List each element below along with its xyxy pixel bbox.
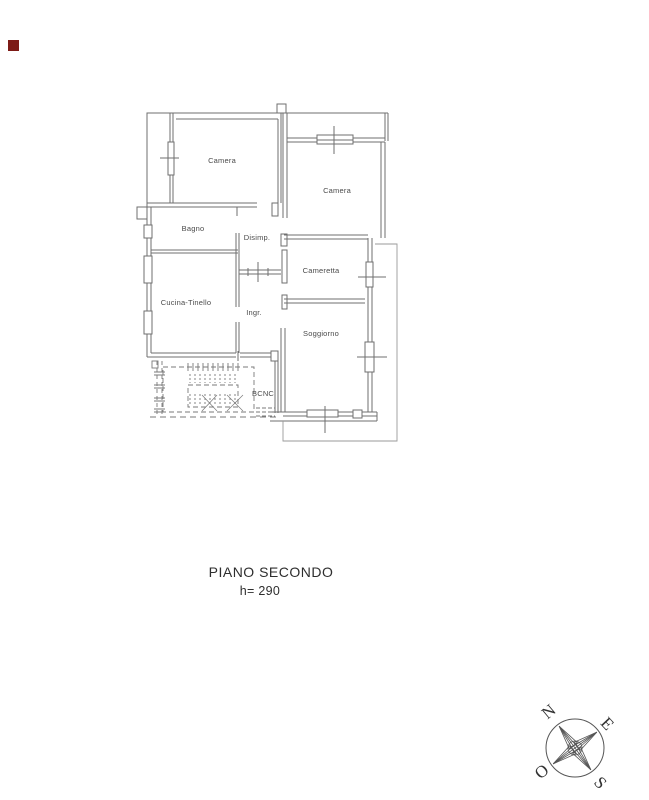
compass-south-label: S [590, 773, 610, 793]
floorplan-drawing: N E O S [0, 0, 649, 800]
compass-north-label: N [538, 700, 560, 722]
room-label-camera-top-left: Camera [192, 157, 252, 165]
room-label-camera-top-right: Camera [307, 187, 367, 195]
compass-rose: N E O S [531, 700, 618, 792]
room-label-disimpegno: Disimp. [227, 234, 287, 242]
walls [147, 104, 388, 421]
compass-west-label: O [531, 760, 553, 782]
room-label-cucina-tinello: Cucina-Tinello [156, 299, 216, 307]
door-symbol [239, 262, 281, 282]
room-label-soggiorno: Soggiorno [291, 330, 351, 338]
floor-title: PIANO SECONDO [171, 564, 371, 580]
window-symbols [137, 126, 387, 433]
floorplan-page: N E O S Camera Camera Bagno Disimp. Came… [0, 0, 649, 800]
room-label-cameretta: Cameretta [291, 267, 351, 275]
room-label-ingresso: Ingr. [224, 309, 284, 317]
floor-height-note: h= 290 [160, 584, 360, 598]
room-label-bcnc: BCNC [252, 390, 282, 398]
compass-east-label: E [597, 713, 618, 734]
room-label-bagno: Bagno [163, 225, 223, 233]
